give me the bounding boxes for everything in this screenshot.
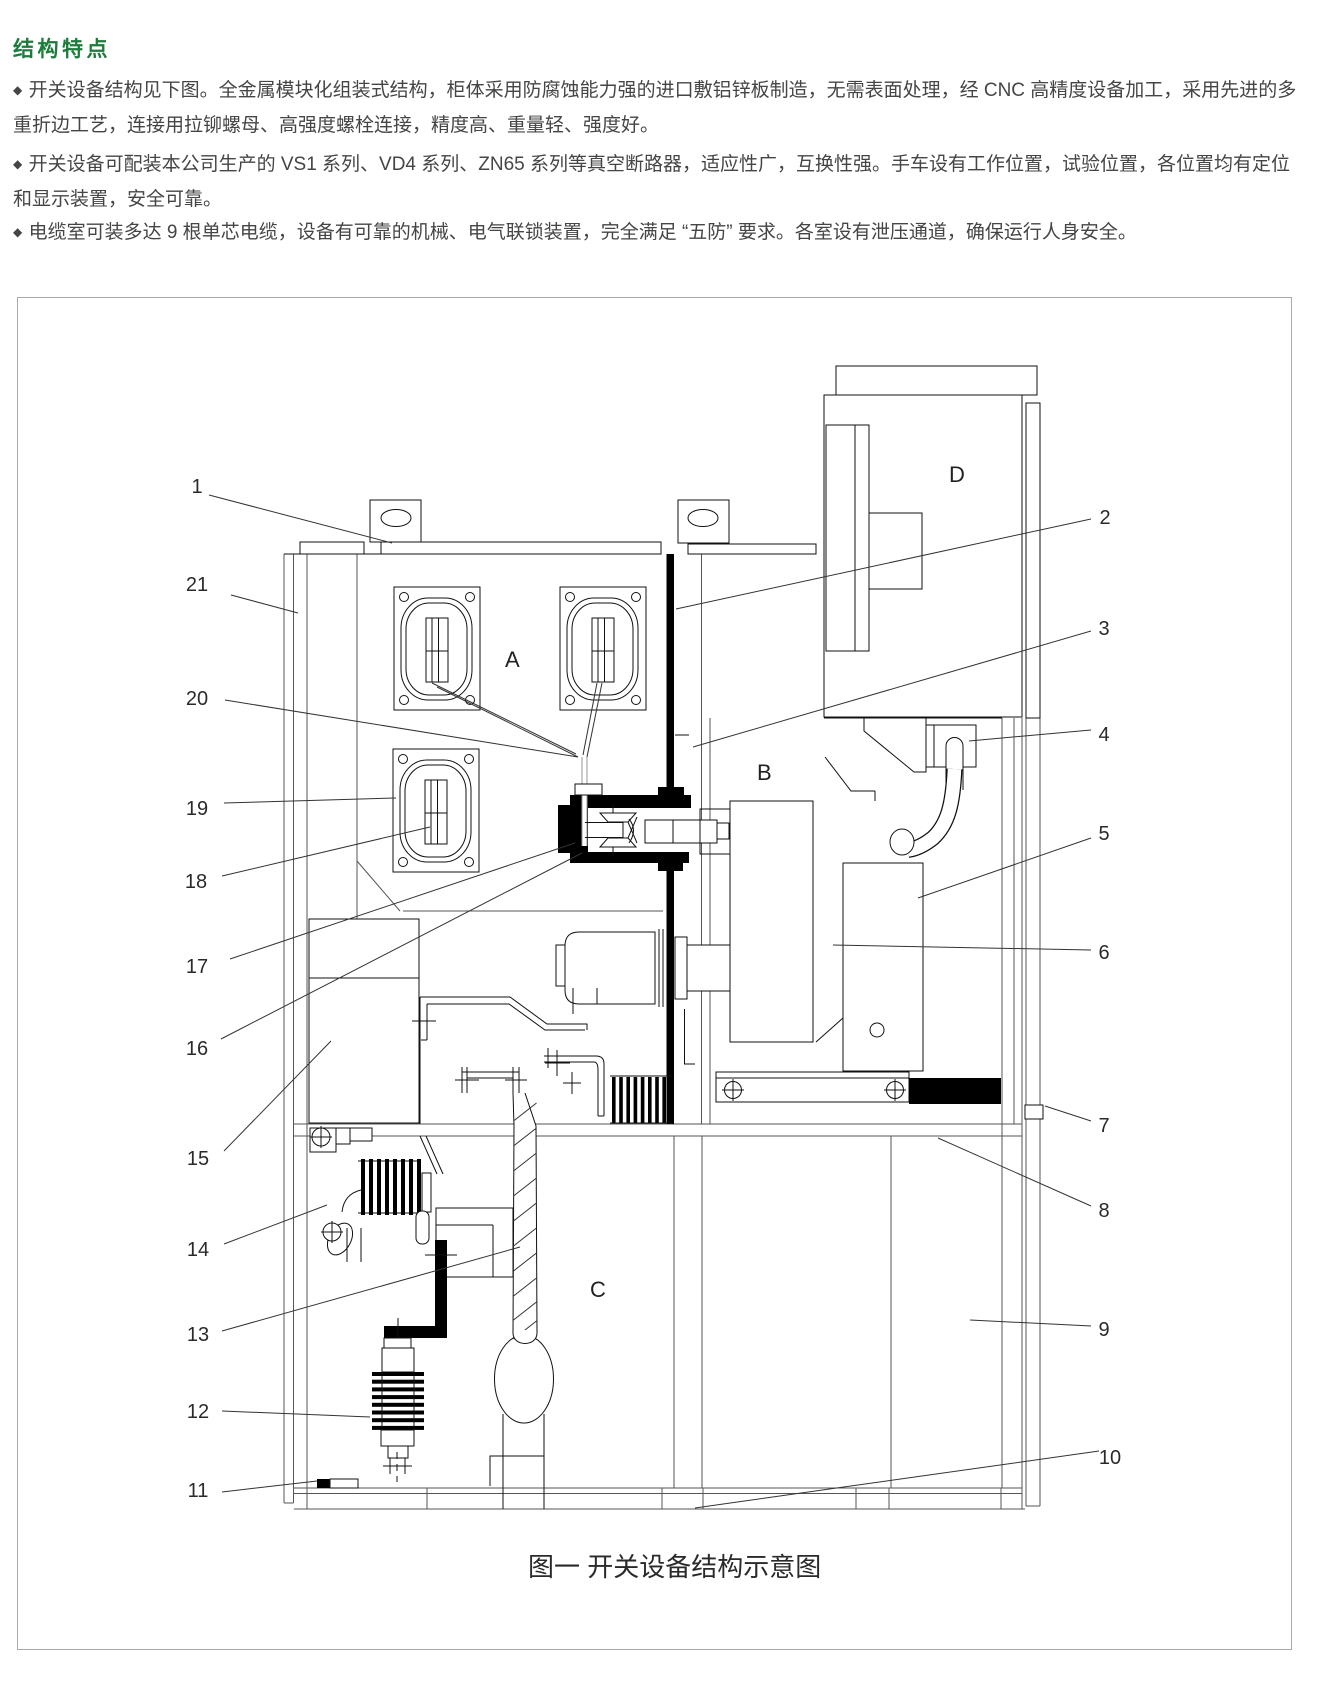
svg-text:19: 19 — [186, 798, 208, 820]
svg-text:1: 1 — [191, 476, 202, 498]
svg-text:10: 10 — [1099, 1447, 1121, 1469]
svg-text:B: B — [757, 760, 772, 785]
svg-text:18: 18 — [185, 871, 207, 893]
svg-text:6: 6 — [1098, 942, 1109, 964]
svg-text:7: 7 — [1098, 1115, 1109, 1137]
svg-text:C: C — [590, 1277, 606, 1302]
svg-text:20: 20 — [186, 688, 208, 710]
svg-text:4: 4 — [1098, 724, 1109, 746]
svg-text:D: D — [949, 462, 965, 487]
svg-text:12: 12 — [187, 1401, 209, 1423]
svg-text:5: 5 — [1098, 823, 1109, 845]
svg-text:17: 17 — [186, 956, 208, 978]
svg-text:A: A — [505, 647, 520, 672]
svg-text:15: 15 — [187, 1148, 209, 1170]
svg-text:3: 3 — [1098, 618, 1109, 640]
svg-text:8: 8 — [1098, 1200, 1109, 1222]
svg-text:13: 13 — [187, 1324, 209, 1346]
svg-text:16: 16 — [186, 1038, 208, 1060]
svg-text:9: 9 — [1098, 1319, 1109, 1341]
svg-text:14: 14 — [187, 1239, 209, 1261]
svg-text:图一 开关设备结构示意图: 图一 开关设备结构示意图 — [528, 1552, 821, 1582]
svg-text:21: 21 — [186, 574, 208, 596]
svg-text:11: 11 — [188, 1480, 209, 1502]
svg-text:2: 2 — [1099, 507, 1110, 529]
